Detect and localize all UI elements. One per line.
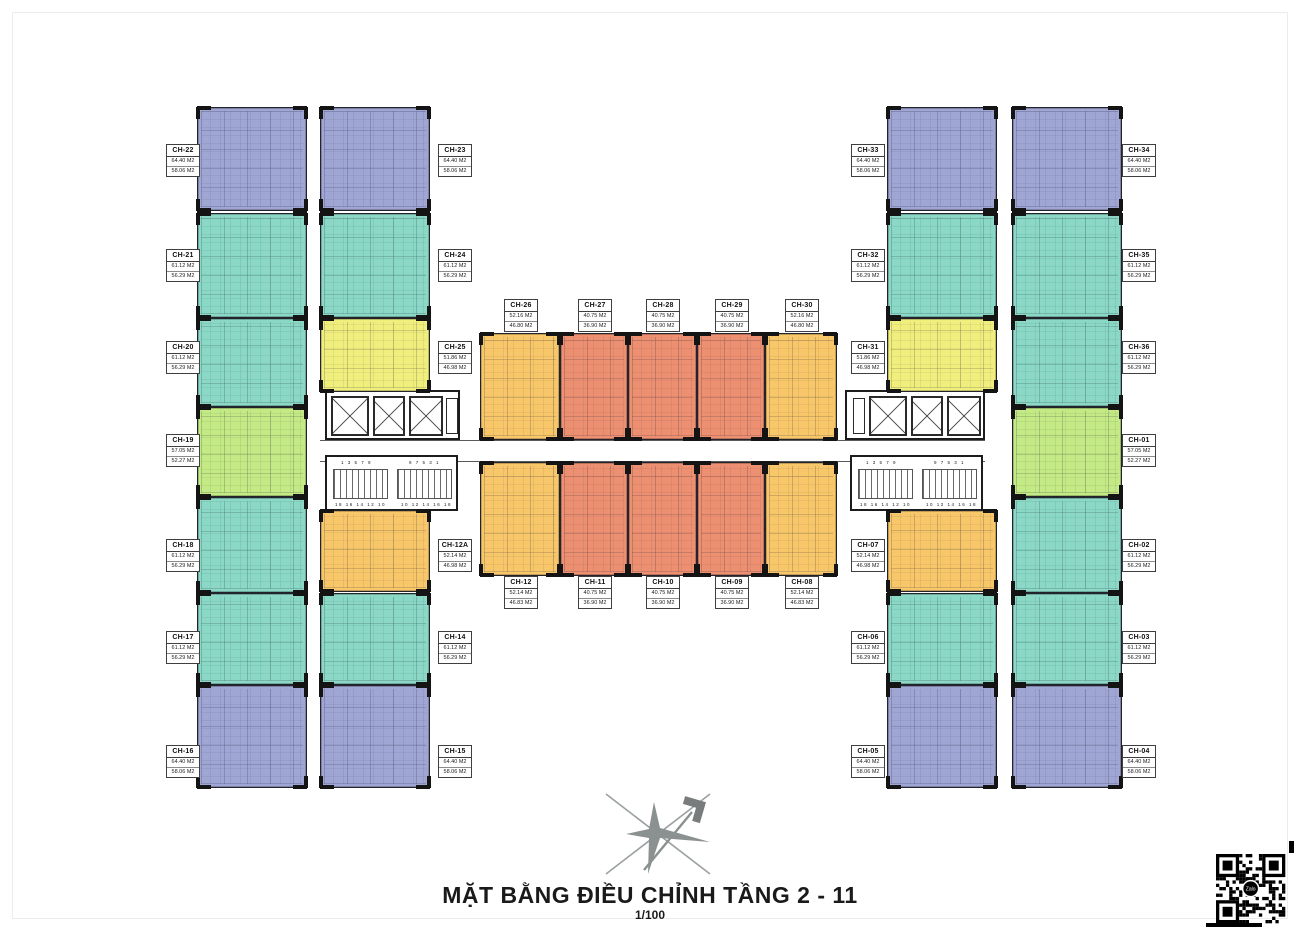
unit-area-gross: 52.16 M2 (505, 312, 537, 321)
scale-label: 1/100 (0, 908, 1300, 922)
unit-id: CH-25 (439, 342, 471, 354)
wall-segment (304, 407, 308, 419)
elevator-icon (331, 396, 369, 436)
crop-mark (1289, 841, 1294, 853)
wall-segment (427, 685, 431, 697)
wall-segment (994, 685, 998, 697)
unit-area-gross: 52.14 M2 (505, 589, 537, 598)
wall-segment (627, 333, 631, 345)
unit-label-CH-18: CH-1861.12 M256.29 M2 (166, 539, 200, 572)
unit-area-gross: 40.75 M2 (716, 589, 748, 598)
unit-area-gross: 61.12 M2 (852, 262, 884, 271)
floorplan-linework (701, 337, 761, 436)
stair-numbers: 10 12 14 16 18 (926, 502, 977, 507)
floor-plan-page: 1 3 5 7 9 18 16 14 12 10 9 7 5 3 1 10 12… (0, 0, 1300, 931)
unit-label-CH-30: CH-3052.16 M246.80 M2 (785, 299, 819, 332)
unit-area-net: 56.29 M2 (1123, 271, 1155, 281)
crop-mark (1206, 923, 1262, 927)
unit-area-gross: 64.40 M2 (167, 157, 199, 166)
wall-segment (886, 776, 890, 788)
wall-segment (1011, 497, 1015, 509)
floorplan-linework (1016, 597, 1118, 681)
unit-CH-27 (560, 333, 628, 440)
wall-segment (427, 593, 431, 605)
unit-area-net: 46.83 M2 (786, 598, 818, 608)
unit-id: CH-11 (579, 577, 611, 589)
floorplan-linework (1016, 322, 1118, 403)
unit-area-gross: 52.16 M2 (786, 312, 818, 321)
unit-CH-07 (887, 510, 997, 592)
wall-segment (479, 462, 483, 474)
unit-label-CH-29: CH-2940.75 M236.90 M2 (715, 299, 749, 332)
unit-area-net: 58.06 M2 (852, 166, 884, 176)
unit-area-gross: 40.75 M2 (647, 312, 679, 321)
wall-segment (304, 213, 308, 225)
unit-CH-31 (887, 318, 997, 392)
floorplan-linework (201, 411, 303, 493)
wall-segment (427, 318, 431, 330)
unit-CH-05 (887, 685, 997, 788)
unit-label-CH-21: CH-2161.12 M256.29 M2 (166, 249, 200, 282)
wall-segment (196, 107, 200, 119)
wall-segment (764, 428, 768, 440)
unit-label-CH-12: CH-1252.14 M246.83 M2 (504, 576, 538, 609)
unit-area-gross: 40.75 M2 (647, 589, 679, 598)
floorplan-linework (1016, 501, 1118, 589)
wall-segment (319, 199, 323, 211)
stair-flight (922, 469, 977, 499)
unit-CH-08 (765, 462, 837, 576)
unit-label-CH-24: CH-2461.12 M256.29 M2 (438, 249, 472, 282)
unit-CH-16 (197, 685, 307, 788)
unit-CH-23 (320, 107, 430, 211)
floorplan-linework (1016, 111, 1118, 207)
unit-id: CH-02 (1123, 540, 1155, 552)
wall-segment (627, 428, 631, 440)
floorplan-linework (324, 597, 426, 681)
wall-segment (427, 199, 431, 211)
unit-CH-30 (765, 333, 837, 440)
unit-label-CH-16: CH-1664.40 M258.06 M2 (166, 745, 200, 778)
floorplan-linework (201, 689, 303, 784)
floorplan-linework (201, 111, 303, 207)
wall-segment (1011, 776, 1015, 788)
unit-label-CH-17: CH-1761.12 M256.29 M2 (166, 631, 200, 664)
unit-id: CH-10 (647, 577, 679, 589)
elevator-icon (409, 396, 443, 436)
unit-CH-34 (1012, 107, 1122, 211)
unit-id: CH-06 (852, 632, 884, 644)
floorplan-linework (632, 466, 693, 572)
unit-CH-01 (1012, 407, 1122, 497)
wall-segment (886, 107, 890, 119)
floorplan-linework (324, 322, 426, 388)
unit-area-gross: 61.12 M2 (1123, 262, 1155, 271)
unit-area-net: 52.27 M2 (167, 456, 199, 466)
floorplan-linework (769, 466, 833, 572)
wall-segment (319, 510, 323, 522)
unit-area-gross: 52.14 M2 (439, 552, 471, 561)
unit-CH-19 (197, 407, 307, 497)
stair-flight (333, 469, 388, 499)
wall-segment (479, 564, 483, 576)
unit-area-gross: 51.86 M2 (852, 354, 884, 363)
wall-segment (304, 107, 308, 119)
unit-area-net: 46.98 M2 (439, 363, 471, 373)
floorplan-linework (701, 466, 761, 572)
wall-segment (196, 497, 200, 509)
floorplan-linework (891, 322, 993, 388)
unit-label-CH-10: CH-1040.75 M236.90 M2 (646, 576, 680, 609)
unit-area-net: 56.29 M2 (167, 561, 199, 571)
unit-id: CH-12A (439, 540, 471, 552)
unit-CH-18 (197, 497, 307, 593)
unit-area-net: 56.29 M2 (167, 363, 199, 373)
wall-segment (319, 685, 323, 697)
unit-area-gross: 64.40 M2 (852, 758, 884, 767)
wall-segment (196, 407, 200, 419)
wall-segment (696, 333, 700, 345)
unit-id: CH-05 (852, 746, 884, 758)
unit-label-CH-23: CH-2364.40 M258.06 M2 (438, 144, 472, 177)
unit-area-net: 56.29 M2 (1123, 653, 1155, 663)
unit-area-net: 56.29 M2 (1123, 561, 1155, 571)
unit-id: CH-01 (1123, 435, 1155, 447)
floorplan-linework (769, 337, 833, 436)
wall-segment (994, 107, 998, 119)
elevator-icon (911, 396, 943, 436)
unit-area-net: 52.27 M2 (1123, 456, 1155, 466)
stair-flight (858, 469, 913, 499)
unit-CH-04 (1012, 685, 1122, 788)
wall-segment (834, 428, 838, 440)
stair-numbers: 18 16 14 12 10 (860, 502, 911, 507)
unit-label-CH-31: CH-3151.86 M246.98 M2 (851, 341, 885, 374)
wall-segment (1119, 318, 1123, 330)
right-elevator-core (845, 390, 985, 440)
unit-id: CH-17 (167, 632, 199, 644)
unit-CH-26 (480, 333, 560, 440)
stair-numbers: 18 16 14 12 10 (335, 502, 386, 507)
wall-segment (319, 580, 323, 592)
wall-segment (627, 462, 631, 474)
floorplan-linework (1016, 411, 1118, 493)
wall-segment (1011, 407, 1015, 419)
wall-segment (994, 380, 998, 392)
wall-segment (559, 333, 563, 345)
unit-area-gross: 61.12 M2 (439, 262, 471, 271)
wall-segment (886, 380, 890, 392)
unit-id: CH-09 (716, 577, 748, 589)
wall-segment (994, 318, 998, 330)
unit-label-CH-03: CH-0361.12 M256.29 M2 (1122, 631, 1156, 664)
unit-label-CH-07: CH-0752.14 M246.98 M2 (851, 539, 885, 572)
wall-segment (304, 776, 308, 788)
unit-area-net: 58.06 M2 (439, 166, 471, 176)
wall-segment (319, 213, 323, 225)
unit-label-CH-35: CH-3561.12 M256.29 M2 (1122, 249, 1156, 282)
unit-id: CH-34 (1123, 145, 1155, 157)
unit-area-net: 36.90 M2 (716, 321, 748, 331)
unit-area-net: 56.29 M2 (439, 271, 471, 281)
elevator-lobby (853, 398, 865, 434)
wall-segment (304, 199, 308, 211)
unit-label-CH-28: CH-2840.75 M236.90 M2 (646, 299, 680, 332)
unit-area-gross: 57.05 M2 (167, 447, 199, 456)
wall-segment (1119, 685, 1123, 697)
wall-segment (1119, 107, 1123, 119)
unit-id: CH-33 (852, 145, 884, 157)
wall-segment (427, 213, 431, 225)
wall-segment (764, 564, 768, 576)
unit-label-CH-22: CH-2264.40 M258.06 M2 (166, 144, 200, 177)
unit-label-CH-05: CH-0564.40 M258.06 M2 (851, 745, 885, 778)
unit-id: CH-27 (579, 300, 611, 312)
unit-CH-32 (887, 213, 997, 318)
floorplan-linework (1016, 217, 1118, 314)
wall-segment (886, 685, 890, 697)
left-stair-core: 1 3 5 7 9 18 16 14 12 10 9 7 5 3 1 10 12… (325, 455, 458, 511)
wall-segment (886, 318, 890, 330)
unit-id: CH-32 (852, 250, 884, 262)
unit-id: CH-31 (852, 342, 884, 354)
unit-area-gross: 51.86 M2 (439, 354, 471, 363)
unit-id: CH-08 (786, 577, 818, 589)
unit-CH-12A (320, 510, 430, 592)
unit-label-CH-34: CH-3464.40 M258.06 M2 (1122, 144, 1156, 177)
unit-area-gross: 61.12 M2 (1123, 552, 1155, 561)
wall-segment (886, 199, 890, 211)
wall-segment (1011, 685, 1015, 697)
floorplan-linework (1016, 689, 1118, 784)
unit-area-net: 36.90 M2 (647, 321, 679, 331)
unit-label-CH-02: CH-0261.12 M256.29 M2 (1122, 539, 1156, 572)
unit-area-net: 58.06 M2 (167, 166, 199, 176)
unit-CH-03 (1012, 593, 1122, 685)
unit-CH-10 (628, 462, 697, 576)
wall-segment (427, 107, 431, 119)
floorplan-linework (891, 597, 993, 681)
unit-area-net: 56.29 M2 (1123, 363, 1155, 373)
floorplan-linework (632, 337, 693, 436)
wall-segment (1119, 213, 1123, 225)
unit-id: CH-03 (1123, 632, 1155, 644)
unit-CH-12 (480, 462, 560, 576)
wall-segment (1119, 199, 1123, 211)
wall-segment (696, 428, 700, 440)
floorplan-linework (324, 689, 426, 784)
unit-id: CH-07 (852, 540, 884, 552)
unit-id: CH-28 (647, 300, 679, 312)
wall-segment (834, 564, 838, 576)
unit-area-net: 36.90 M2 (579, 321, 611, 331)
unit-area-net: 56.29 M2 (852, 653, 884, 663)
floorplan-linework (201, 217, 303, 314)
unit-id: CH-23 (439, 145, 471, 157)
unit-area-gross: 52.14 M2 (852, 552, 884, 561)
unit-id: CH-20 (167, 342, 199, 354)
wall-segment (319, 380, 323, 392)
elevator-icon (947, 396, 981, 436)
unit-area-gross: 61.12 M2 (167, 644, 199, 653)
unit-id: CH-29 (716, 300, 748, 312)
unit-label-CH-20: CH-2061.12 M256.29 M2 (166, 341, 200, 374)
unit-CH-11 (560, 462, 628, 576)
unit-id: CH-12 (505, 577, 537, 589)
unit-CH-24 (320, 213, 430, 318)
unit-area-gross: 61.12 M2 (439, 644, 471, 653)
unit-area-gross: 57.05 M2 (1123, 447, 1155, 456)
unit-CH-33 (887, 107, 997, 211)
unit-area-net: 56.29 M2 (439, 653, 471, 663)
unit-area-gross: 64.40 M2 (1123, 758, 1155, 767)
unit-area-net: 58.06 M2 (852, 767, 884, 777)
wall-segment (304, 318, 308, 330)
wall-segment (427, 580, 431, 592)
unit-area-gross: 61.12 M2 (1123, 354, 1155, 363)
unit-area-gross: 61.12 M2 (852, 644, 884, 653)
wall-segment (319, 593, 323, 605)
wall-segment (196, 593, 200, 605)
unit-area-gross: 64.40 M2 (439, 157, 471, 166)
floorplan-linework (484, 337, 556, 436)
wall-segment (319, 318, 323, 330)
wall-segment (886, 593, 890, 605)
wall-segment (994, 510, 998, 522)
floorplan-linework (201, 501, 303, 589)
wall-segment (304, 497, 308, 509)
floorplan-linework (201, 597, 303, 681)
unit-label-CH-12A: CH-12A52.14 M246.98 M2 (438, 539, 472, 572)
wall-segment (834, 333, 838, 345)
unit-CH-06 (887, 593, 997, 685)
floorplan-linework (484, 466, 556, 572)
wall-segment (559, 462, 563, 474)
wall-segment (196, 685, 200, 697)
unit-area-net: 58.06 M2 (1123, 166, 1155, 176)
unit-label-CH-04: CH-0464.40 M258.06 M2 (1122, 745, 1156, 778)
unit-area-net: 56.29 M2 (852, 271, 884, 281)
page-title: MẶT BẰNG ĐIỀU CHỈNH TẦNG 2 - 11 (0, 882, 1300, 909)
wall-segment (834, 462, 838, 474)
wall-segment (1119, 593, 1123, 605)
wall-segment (304, 685, 308, 697)
unit-id: CH-15 (439, 746, 471, 758)
unit-id: CH-21 (167, 250, 199, 262)
elevator-icon (869, 396, 907, 436)
unit-CH-15 (320, 685, 430, 788)
unit-area-gross: 40.75 M2 (579, 589, 611, 598)
stair-numbers: 1 3 5 7 9 (866, 460, 897, 465)
wall-segment (559, 564, 563, 576)
unit-area-net: 36.90 M2 (579, 598, 611, 608)
unit-id: CH-14 (439, 632, 471, 644)
unit-area-gross: 40.75 M2 (716, 312, 748, 321)
unit-CH-28 (628, 333, 697, 440)
unit-area-net: 46.98 M2 (852, 561, 884, 571)
wall-segment (1011, 593, 1015, 605)
unit-area-net: 46.80 M2 (505, 321, 537, 331)
unit-CH-22 (197, 107, 307, 211)
unit-id: CH-30 (786, 300, 818, 312)
unit-id: CH-26 (505, 300, 537, 312)
wall-segment (196, 199, 200, 211)
unit-label-CH-33: CH-3364.40 M258.06 M2 (851, 144, 885, 177)
unit-label-CH-25: CH-2551.86 M246.98 M2 (438, 341, 472, 374)
unit-area-net: 58.06 M2 (167, 767, 199, 777)
floorplan-linework (891, 514, 993, 588)
wall-segment (559, 428, 563, 440)
wall-segment (764, 333, 768, 345)
wall-segment (1011, 213, 1015, 225)
unit-id: CH-04 (1123, 746, 1155, 758)
floorplan-linework (891, 689, 993, 784)
wall-segment (1011, 318, 1015, 330)
unit-label-CH-26: CH-2652.16 M246.80 M2 (504, 299, 538, 332)
unit-CH-14 (320, 593, 430, 685)
unit-label-CH-09: CH-0940.75 M236.90 M2 (715, 576, 749, 609)
unit-CH-20 (197, 318, 307, 407)
unit-label-CH-11: CH-1140.75 M236.90 M2 (578, 576, 612, 609)
unit-label-CH-14: CH-1461.12 M256.29 M2 (438, 631, 472, 664)
wall-segment (886, 510, 890, 522)
unit-area-net: 46.83 M2 (505, 598, 537, 608)
compass-north-icon (598, 776, 718, 881)
stair-numbers: 10 12 14 16 18 (401, 502, 452, 507)
unit-id: CH-36 (1123, 342, 1155, 354)
unit-area-gross: 64.40 M2 (852, 157, 884, 166)
unit-area-net: 46.98 M2 (439, 561, 471, 571)
unit-area-net: 36.90 M2 (716, 598, 748, 608)
unit-CH-17 (197, 593, 307, 685)
unit-id: CH-22 (167, 145, 199, 157)
floorplan-linework (891, 217, 993, 314)
floorplan-linework (891, 111, 993, 207)
wall-segment (479, 428, 483, 440)
wall-segment (304, 593, 308, 605)
wall-segment (696, 564, 700, 576)
elevator-icon (373, 396, 405, 436)
unit-label-CH-01: CH-0157.05 M252.27 M2 (1122, 434, 1156, 467)
wall-segment (427, 380, 431, 392)
wall-segment (319, 107, 323, 119)
unit-CH-25 (320, 318, 430, 392)
stair-numbers: 9 7 5 3 1 (934, 460, 965, 465)
unit-id: CH-16 (167, 746, 199, 758)
unit-CH-35 (1012, 213, 1122, 318)
wall-segment (319, 776, 323, 788)
floorplan-linework (324, 111, 426, 207)
right-stair-core: 1 3 5 7 9 18 16 14 12 10 9 7 5 3 1 10 12… (850, 455, 983, 511)
unit-label-CH-06: CH-0661.12 M256.29 M2 (851, 631, 885, 664)
floorplan-linework (324, 217, 426, 314)
unit-area-gross: 61.12 M2 (167, 552, 199, 561)
unit-area-net: 36.90 M2 (647, 598, 679, 608)
unit-label-CH-19: CH-1957.05 M252.27 M2 (166, 434, 200, 467)
unit-area-gross: 61.12 M2 (167, 354, 199, 363)
wall-segment (196, 213, 200, 225)
floorplan-linework (564, 466, 624, 572)
unit-id: CH-35 (1123, 250, 1155, 262)
wall-segment (627, 564, 631, 576)
wall-segment (1011, 199, 1015, 211)
unit-area-gross: 64.40 M2 (167, 758, 199, 767)
unit-label-CH-36: CH-3661.12 M256.29 M2 (1122, 341, 1156, 374)
wall-segment (479, 333, 483, 345)
floorplan-linework (201, 322, 303, 403)
floorplan-linework (564, 337, 624, 436)
unit-area-gross: 61.12 M2 (167, 262, 199, 271)
